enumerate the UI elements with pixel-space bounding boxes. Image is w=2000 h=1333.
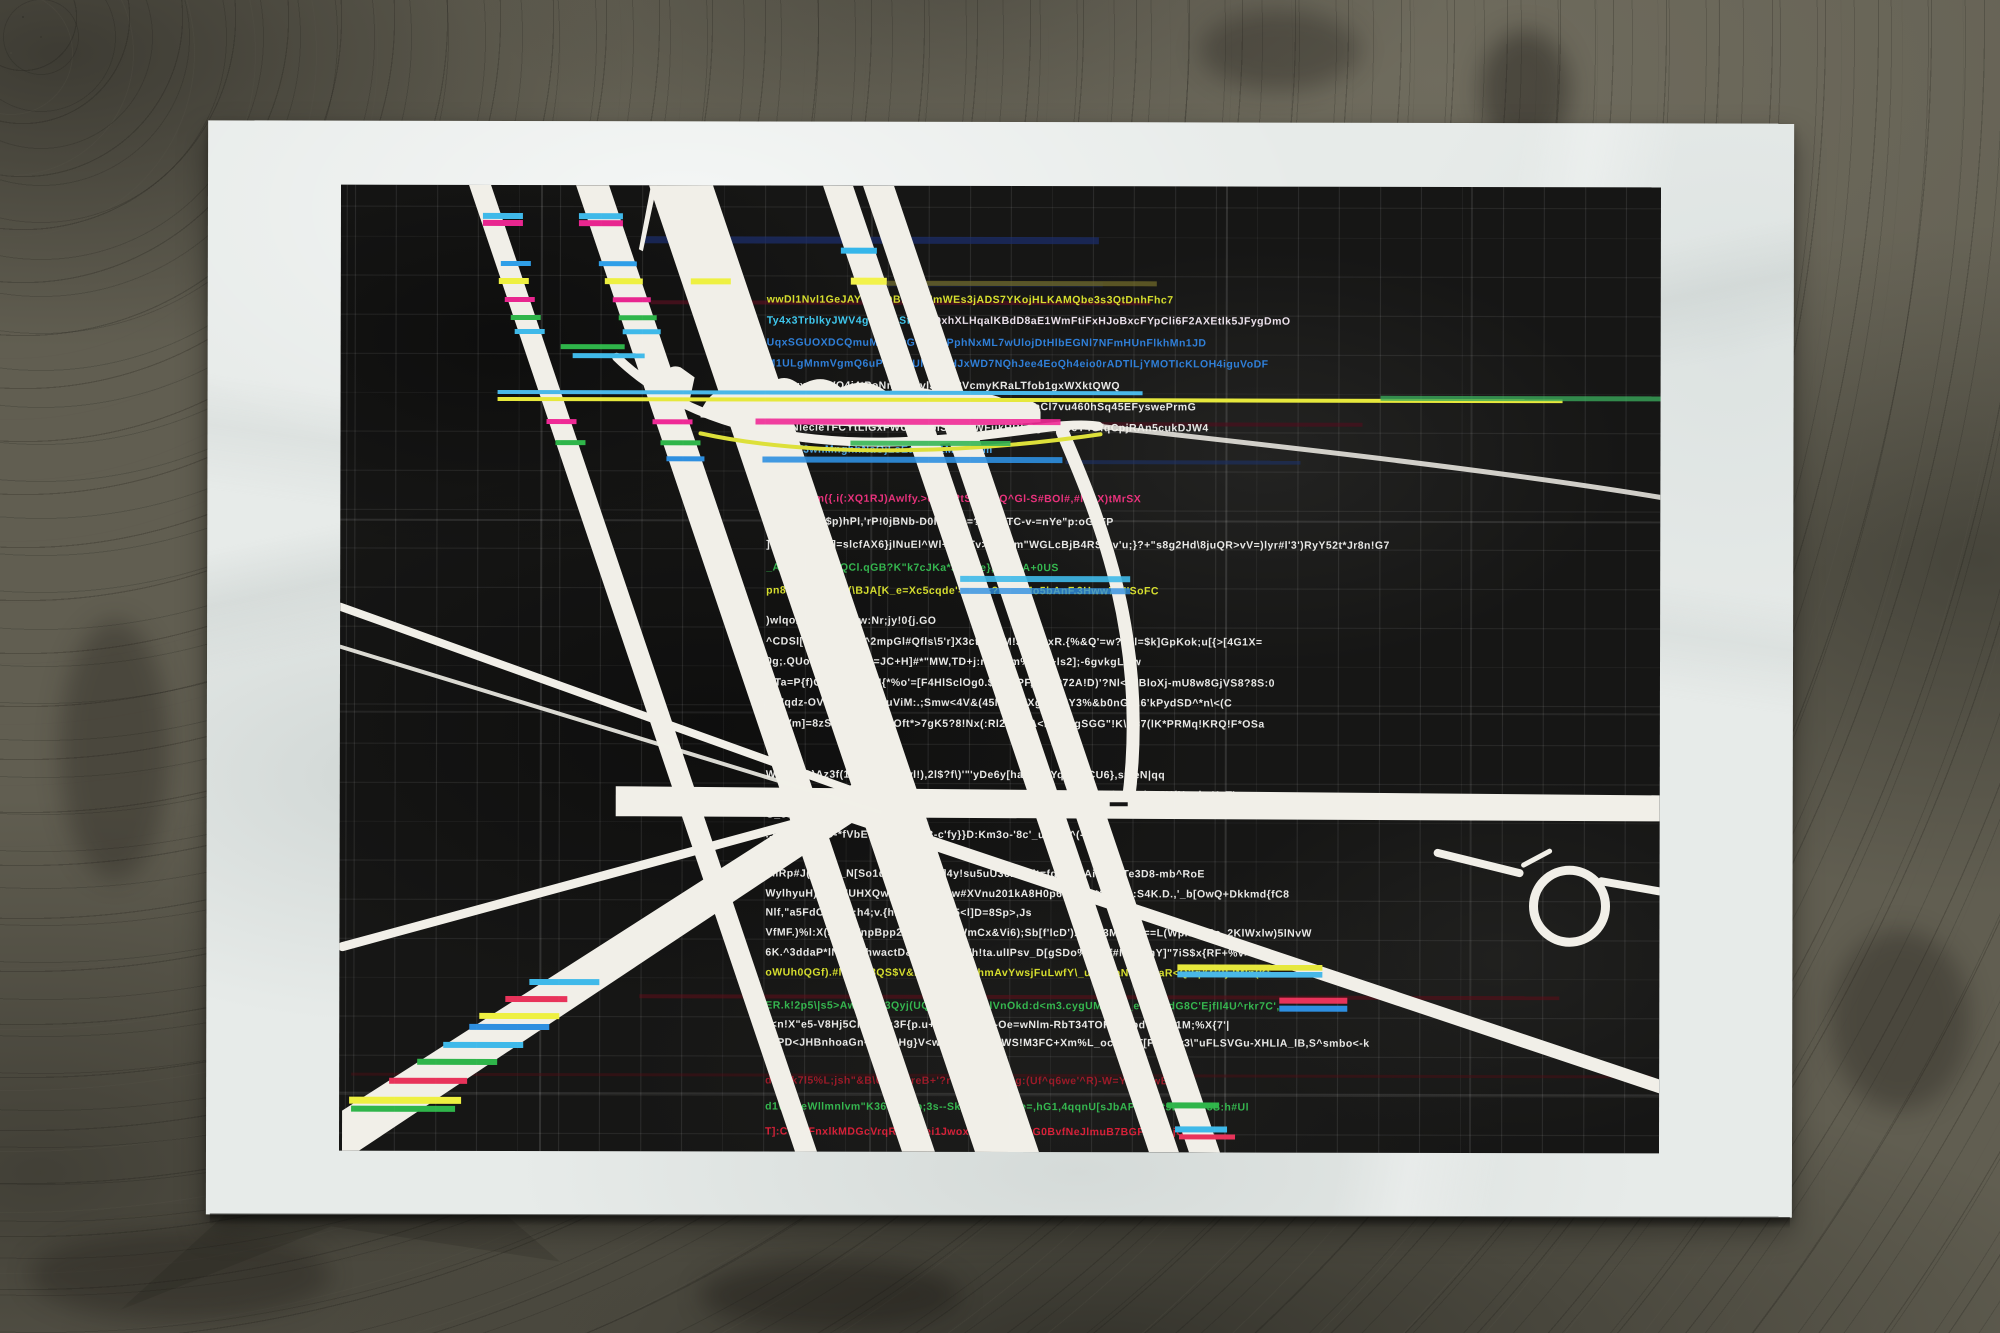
- wire-right: [1098, 426, 1660, 497]
- concrete-floor: wwDl1Nvl1GeJAYQO2DBfcEaNmWEs3jADS7YKojHL…: [0, 0, 2000, 1333]
- loop-tail: [1524, 851, 1550, 865]
- floor-stain: [60, 620, 170, 880]
- cable-artwork: [339, 185, 1661, 1154]
- white-band-lower-left: [342, 771, 902, 1152]
- wire: [340, 647, 880, 812]
- floor-stain: [1830, 930, 1970, 1110]
- white-band: [861, 186, 1222, 1153]
- loop-entry-wire: [1438, 853, 1520, 873]
- poster-paper: wwDl1Nvl1GeJAYQO2DBfcEaNmWEs3jADS7YKojHL…: [206, 120, 1794, 1217]
- loop-exit-wire: [1602, 881, 1660, 891]
- print-black-field: wwDl1Nvl1GeJAYQO2DBfcEaNmWEs3jADS7YKojHL…: [339, 185, 1661, 1154]
- wire-loop: [1533, 870, 1605, 942]
- floor-stain: [700, 1260, 960, 1330]
- white-band-horizontal: [616, 786, 1660, 821]
- white-band: [647, 185, 1041, 1152]
- silhouettes: [653, 366, 1041, 427]
- wire: [342, 797, 889, 948]
- floor-stain: [1200, 10, 1360, 90]
- top-sliver: [639, 185, 657, 251]
